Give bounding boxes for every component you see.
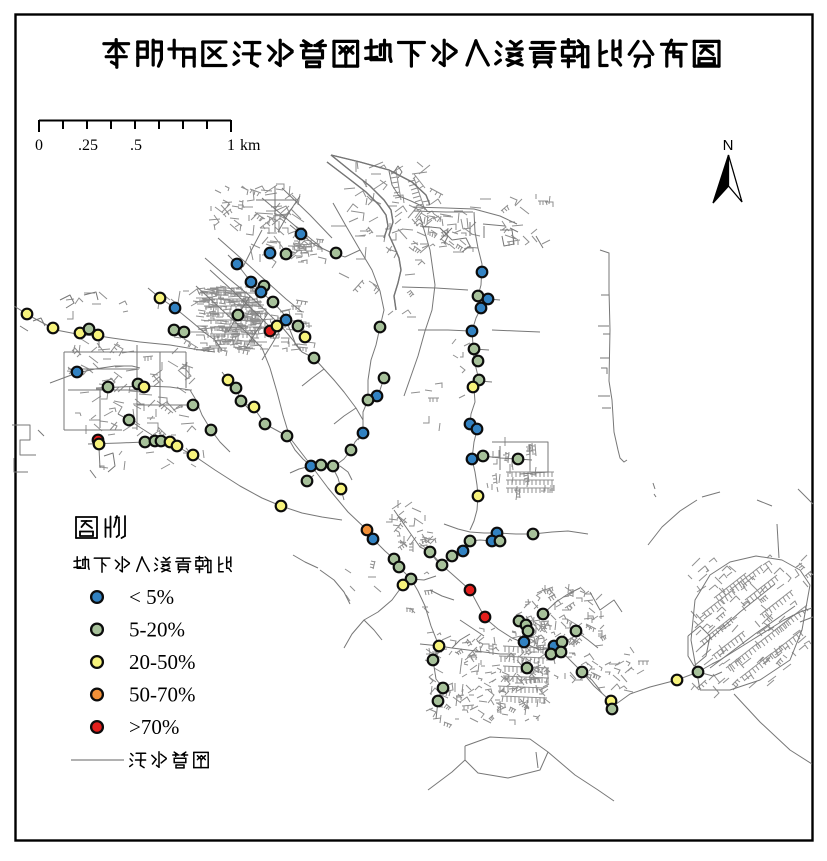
svg-text:< 5%: < 5% bbox=[129, 585, 174, 609]
svg-text:km: km bbox=[240, 137, 261, 154]
svg-text:50-70%: 50-70% bbox=[129, 683, 196, 707]
svg-text:1: 1 bbox=[227, 137, 235, 154]
svg-text:.5: .5 bbox=[130, 137, 142, 154]
svg-text:5-20%: 5-20% bbox=[129, 618, 185, 642]
svg-text:>70%: >70% bbox=[129, 715, 179, 739]
svg-text:0: 0 bbox=[35, 137, 43, 154]
svg-text:20-50%: 20-50% bbox=[129, 650, 196, 674]
svg-text:N: N bbox=[723, 137, 734, 154]
svg-text:.25: .25 bbox=[78, 137, 98, 154]
